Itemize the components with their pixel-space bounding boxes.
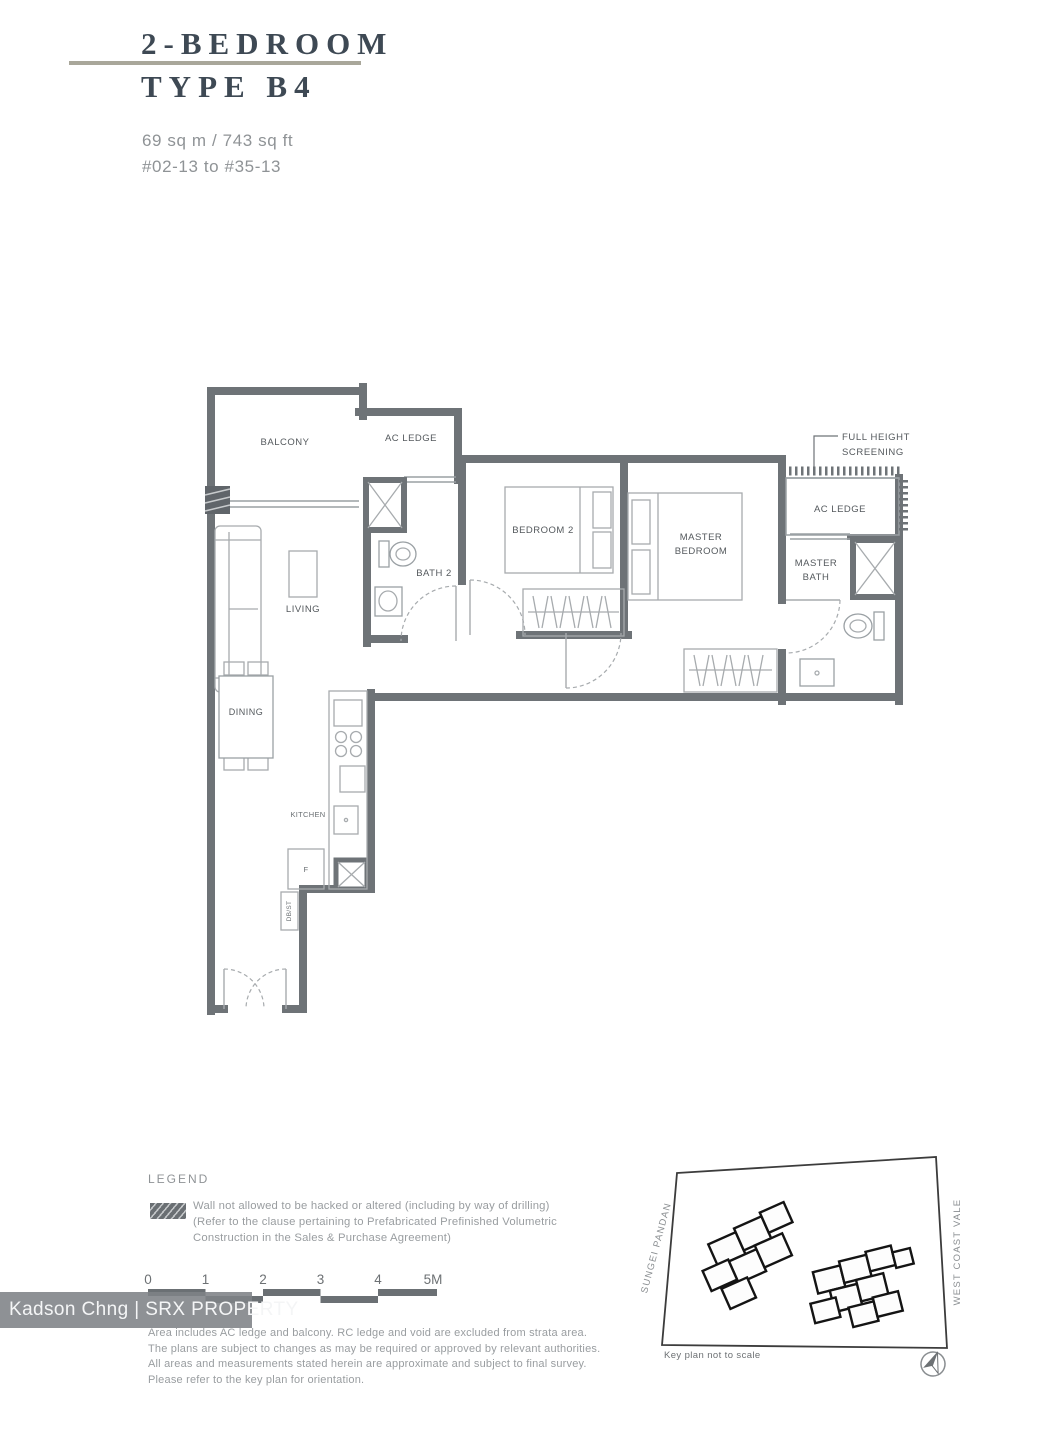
ac-ledge2-label: AC LEDGE [814, 504, 866, 515]
bedroom2-label: BEDROOM 2 [512, 525, 574, 536]
master-bath-label-2: BATH [803, 572, 830, 583]
screening-callout-line2: SCREENING [842, 447, 904, 458]
watermark: Kadson Chng | SRX PROPERTY [0, 1292, 252, 1328]
db-st-label: DB/ST [286, 901, 293, 922]
scale-0: 0 [144, 1272, 152, 1287]
key-plan-note: Key plan not to scale [664, 1350, 761, 1361]
toilet-bath2 [379, 541, 416, 567]
sofa [215, 526, 261, 692]
living-label: LIVING [286, 604, 320, 615]
tv-console [289, 551, 317, 597]
full-height-screening [789, 471, 904, 533]
door-arc-hallway [566, 633, 621, 688]
master-bath-label-1: MASTER [795, 558, 838, 569]
wardrobe-bedroom2 [523, 589, 624, 636]
door-arc-bedroom2 [470, 580, 525, 635]
ac-ledge1-label: AC LEDGE [385, 433, 437, 444]
scale-5m: 5M [424, 1272, 443, 1287]
toilet-master-bath [844, 612, 884, 640]
bath2-label: BATH 2 [416, 568, 452, 579]
master-bedroom-label-2: BEDROOM [675, 546, 728, 557]
ac-shaft-bath2 [366, 480, 404, 530]
fridge: F [288, 849, 324, 889]
scale-1: 1 [202, 1272, 210, 1287]
compass-icon [918, 1348, 949, 1380]
balcony-label: BALCONY [261, 437, 310, 448]
floorplan-page: 2-BEDROOM TYPE B4 69 sq m / 743 sq ft #0… [0, 0, 1063, 1440]
sink-master-bath [800, 659, 834, 686]
hack-wall-marker [205, 486, 230, 514]
fridge-label: F [304, 865, 309, 874]
shower-master-bath [853, 540, 897, 597]
screening-callout: FULL HEIGHT SCREENING [814, 432, 910, 470]
entry-door-arcs [224, 969, 286, 1009]
floor-plan: FULL HEIGHT SCREENING [205, 387, 910, 1011]
screening-callout-line1: FULL HEIGHT [842, 432, 910, 443]
scale-4: 4 [374, 1272, 382, 1287]
floorplan-drawing: FULL HEIGHT SCREENING [0, 0, 1063, 1440]
wardrobe-master [684, 649, 777, 692]
master-bedroom-label-1: MASTER [680, 532, 723, 543]
scale-2: 2 [259, 1272, 267, 1287]
sink-bath2 [375, 587, 402, 616]
dining-label: DINING [229, 707, 264, 717]
door-arc-master-bath [786, 600, 840, 653]
walls [211, 387, 899, 1011]
road-label-right: WEST COAST VALE [952, 1199, 963, 1306]
kitchen-label: KITCHEN [290, 810, 325, 819]
db-st-box: DB/ST [281, 892, 298, 930]
key-plan: SUNGEI PANDAN WEST COAST VALE Key plan n… [639, 1157, 963, 1379]
door-arc-bath2 [401, 586, 456, 641]
scale-3: 3 [317, 1272, 325, 1287]
kitchen-shaft [336, 860, 367, 889]
